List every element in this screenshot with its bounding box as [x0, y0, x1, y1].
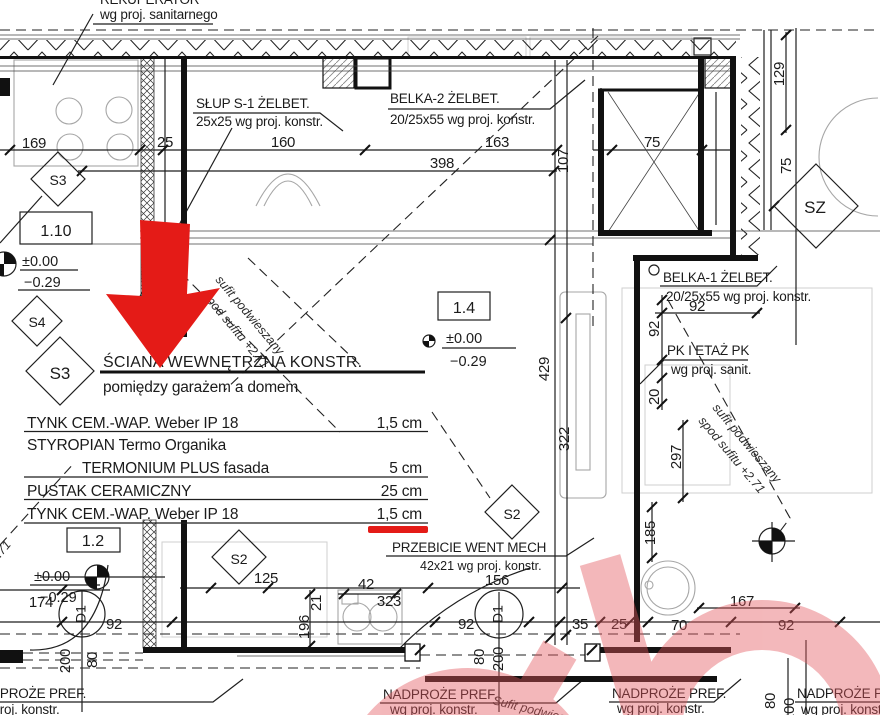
- dim-20: 20: [646, 389, 663, 405]
- column-hatched: [323, 58, 354, 88]
- spec-row-value: 5 cm: [389, 460, 422, 477]
- hob-burner-icon: [107, 134, 133, 160]
- benchmark-leader: [0, 196, 42, 243]
- level-zero: ±0.00: [34, 569, 70, 585]
- dim-107: 107: [555, 149, 572, 173]
- dim-25: 25: [157, 134, 173, 151]
- dim-42: 42: [358, 576, 374, 593]
- hob-burner-icon: [56, 98, 82, 124]
- red-arrow-pointer: [106, 220, 220, 368]
- sink-bowl-inner: [647, 567, 689, 609]
- dim-429: 429: [536, 357, 553, 381]
- door-jamb: [585, 644, 600, 661]
- dim-125: 125: [254, 570, 278, 587]
- dashed-leader-s2: [432, 412, 490, 498]
- marker-s4-label: S4: [28, 314, 45, 330]
- wardrobe-door: [576, 314, 590, 470]
- column-block: [356, 58, 390, 88]
- dim-200: 200: [57, 649, 74, 673]
- dim-200: 200: [490, 647, 507, 671]
- slup-label: SŁUP S-1 ŻELBET.: [196, 96, 310, 111]
- dim-174: 174: [29, 594, 53, 611]
- marker-s2-left-label: S2: [230, 551, 247, 567]
- dim-80: 80: [762, 693, 779, 709]
- nadproze-label: NADPROŻE PREF.: [0, 686, 86, 701]
- nadproze-note: wg proj. konstr.: [0, 702, 60, 715]
- door-d1-mid-label: D1: [490, 605, 506, 623]
- level-zero: ±0.00: [22, 254, 58, 270]
- belka2-note: 20/25x55 wg proj. konstr.: [390, 112, 535, 127]
- room-110-label: 1.10: [40, 223, 71, 240]
- wall-stub-bottom: [0, 650, 23, 663]
- dim-92-vert: 92: [646, 321, 663, 337]
- dim-398: 398: [430, 155, 454, 172]
- dashed-diagonal-main: [225, 36, 598, 390]
- dim-92: 92: [458, 616, 474, 633]
- arched-fixture: [256, 174, 320, 206]
- hatch-layer: [0, 38, 760, 648]
- marker-s2-label: S2: [503, 506, 520, 522]
- wall-section-title: ŚCIANA WEWNĘTRZNA KONSTR.: [103, 352, 362, 371]
- door-d1-left-label: D1: [73, 605, 89, 623]
- rekuperator-label: REKUPERATOR: [100, 0, 200, 7]
- dim-80: 80: [471, 649, 488, 665]
- marker-s3-top-label: S3: [49, 172, 66, 188]
- door-swing-arc-right: [819, 98, 878, 216]
- insulation-hatch-right: [741, 57, 760, 255]
- level-minus: −0.29: [24, 275, 61, 291]
- floor-plan-drawing: REKUPERATOR wg proj. sanitarnego SŁUP S-…: [0, 0, 880, 715]
- dim-160: 160: [271, 134, 295, 151]
- washer-drum-icon: [343, 603, 371, 631]
- benchmark-icon-small: [423, 335, 435, 347]
- rekuperator-note: wg proj. sanitarnego: [99, 7, 218, 22]
- slup-note: 25x25 wg proj. konstr.: [196, 114, 323, 129]
- belka2-label: BELKA-2 ŻELBET.: [390, 91, 500, 106]
- dim-129: 129: [771, 62, 788, 86]
- dim-156: 156: [485, 572, 509, 589]
- dim-322: 322: [556, 427, 573, 451]
- benchmark-icon: [85, 565, 109, 589]
- room-14-label: 1.4: [453, 300, 475, 317]
- benchmark-icon: [759, 528, 785, 554]
- pk-label: PK I ETAŻ PK: [667, 343, 749, 358]
- wall-hatch-strip: [143, 520, 156, 648]
- dashed-sufit-zone: [170, 258, 360, 432]
- wall-section-subtitle: pomiędzy garażem a domem: [103, 379, 298, 396]
- belka-bullet-icon: [649, 265, 659, 275]
- spec-row-name: PUSTAK CERAMICZNY: [27, 483, 191, 500]
- dim-323: 323: [377, 593, 401, 610]
- benchmark-icon: [0, 252, 16, 276]
- hob-burner-icon: [57, 134, 83, 160]
- przebicie-label: PRZEBICIE WENT MECH: [392, 540, 546, 555]
- spec-row-name: STYROPIAN Termo Organika: [27, 437, 227, 454]
- spec-row-value: 1,5 cm: [377, 415, 422, 432]
- dim-92: 92: [106, 616, 122, 633]
- dim-80: 80: [84, 652, 101, 668]
- spec-row-name: TERMONIUM PLUS fasada: [82, 460, 270, 477]
- dim-200: 200: [781, 698, 798, 715]
- dim-185: 185: [642, 521, 659, 545]
- dim-21: 21: [308, 595, 325, 611]
- dashed-sufit-zone-left: [0, 462, 75, 545]
- level-minus: −0.29: [450, 354, 487, 370]
- architectural-drawing-viewport: REKUPERATOR wg proj. sanitarnego SŁUP S-…: [0, 0, 880, 715]
- column-hatched: [705, 58, 733, 88]
- dim-163: 163: [485, 134, 509, 151]
- spec-row-value: 1,5 cm: [377, 506, 422, 523]
- hob-burner-icon: [106, 97, 132, 123]
- spec-row-name: TYNK CEM.-WAP. Weber IP 18: [27, 506, 238, 523]
- arched-fixture-inner: [264, 181, 312, 206]
- sink-tap: [645, 581, 653, 589]
- wall-stub: [0, 78, 10, 96]
- belka1-note: 20/25x55 wg proj. konstr.: [666, 289, 811, 304]
- dim-196: 196: [296, 615, 313, 639]
- washer-panel: [342, 594, 358, 604]
- dim-75: 75: [644, 134, 660, 151]
- marker-s3-label: S3: [50, 364, 71, 383]
- red-highlight-underline: [368, 526, 428, 533]
- dim-75-vert: 75: [778, 158, 795, 174]
- sink-bowl: [641, 561, 695, 615]
- shaft-cross: [608, 92, 700, 232]
- dim-92: 92: [689, 298, 705, 315]
- belka1-label: BELKA-1 ŻELBET.: [663, 270, 773, 285]
- sufit-note-left-l2: spod sufitu +2.71: [0, 538, 14, 620]
- insulation-hatch-top: [0, 40, 736, 57]
- pk-note: wg proj. sanit.: [670, 362, 751, 377]
- spec-row-name: TYNK CEM.-WAP. Weber IP 18: [27, 415, 238, 432]
- przebicie-note: 42x21 wg proj. konstr.: [420, 559, 542, 573]
- spec-row-value: 25 cm: [381, 483, 422, 500]
- dim-169: 169: [22, 135, 46, 152]
- level-zero: ±0.00: [446, 331, 482, 347]
- room-12-label: 1.2: [82, 533, 104, 550]
- dim-35: 35: [572, 616, 588, 633]
- dim-297: 297: [668, 445, 685, 469]
- marker-sz-label: SZ: [804, 198, 826, 217]
